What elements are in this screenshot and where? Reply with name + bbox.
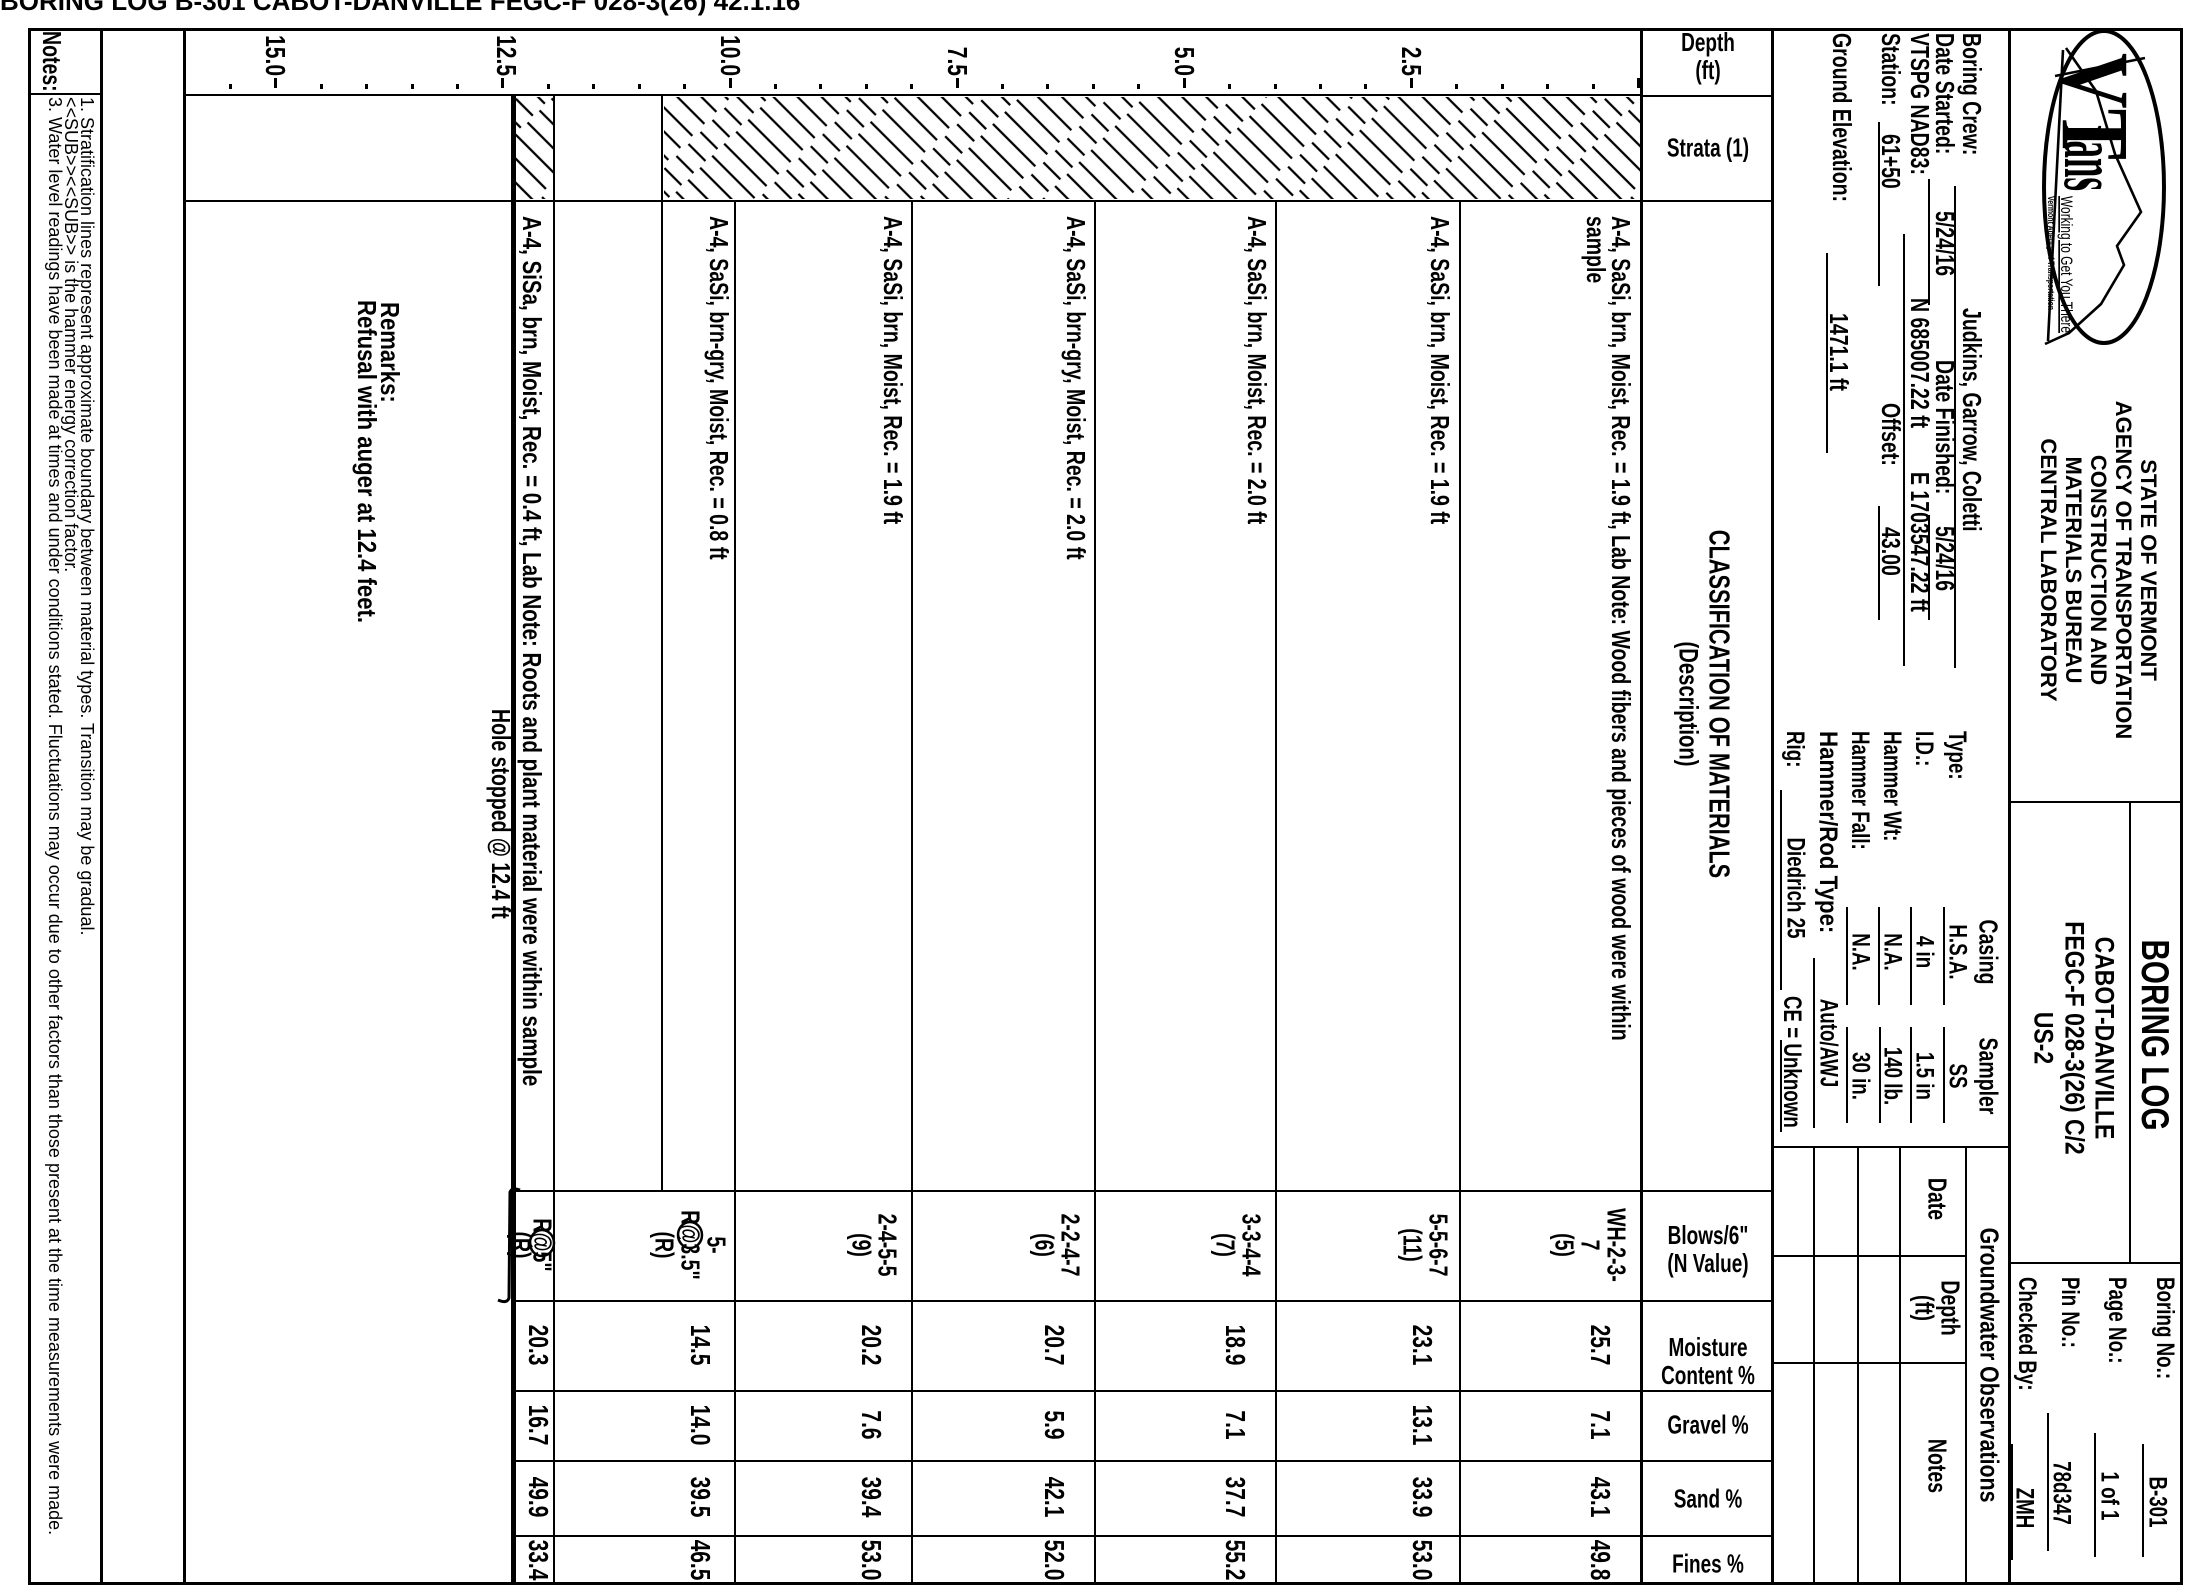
svg-text:Vermont Agency of Transportati: Vermont Agency of Transportation [2045, 196, 2056, 310]
svg-text:rans: rans [2048, 125, 2135, 191]
svg-text:Working to Get You There: Working to Get You There [2057, 196, 2076, 333]
